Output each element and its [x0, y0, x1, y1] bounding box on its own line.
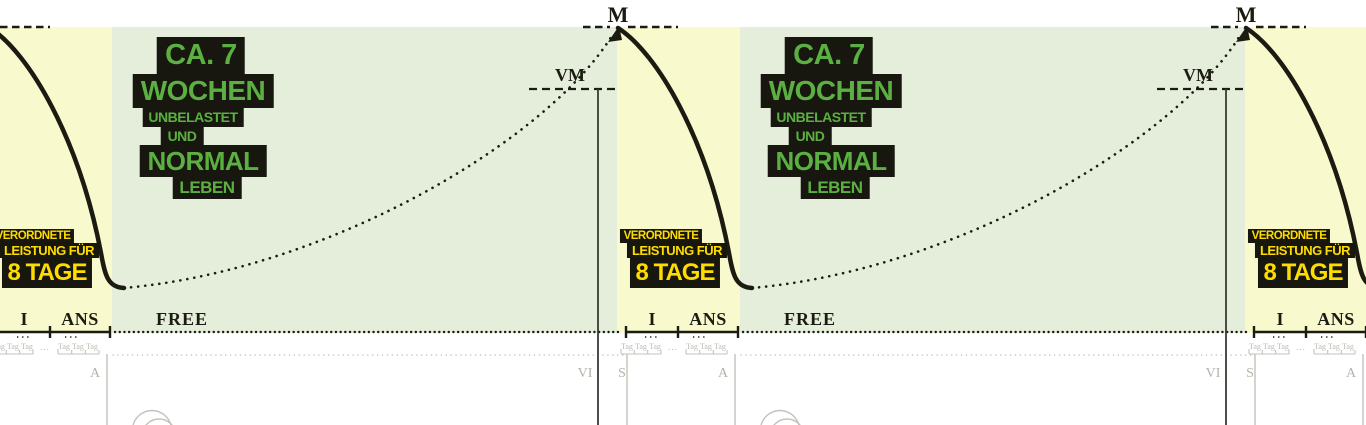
note-line: WOCHEN — [761, 74, 902, 108]
faded-letter-a: A — [718, 366, 728, 382]
training-cycle-3: M VM I ANS FREE CA. 7 WOCHEN UNBELASTET … — [1245, 0, 1366, 425]
day-ellipsis: ... — [1296, 342, 1306, 352]
note-line: VERORDNETE — [0, 229, 74, 243]
day-tick-label: Tag — [1263, 342, 1275, 351]
intensity-phase-label: I — [1276, 309, 1283, 330]
day-ellipsis: ... — [40, 342, 50, 352]
faded-circle-inner — [142, 419, 176, 425]
curves-overlay — [0, 0, 617, 425]
day-tick-label: Tag — [635, 342, 647, 351]
note-line: WOCHEN — [133, 74, 274, 108]
prescription-note-block: VERORDNETE LEISTUNG FÜR 8 TAGE — [1253, 229, 1353, 288]
day-tick-label: Tag — [1314, 342, 1326, 351]
note-line: LEBEN — [800, 177, 869, 199]
faded-vertical-guides — [627, 354, 735, 425]
day-ellipsis: ... — [668, 342, 678, 352]
day-tick-label: Tag — [1342, 342, 1354, 351]
day-tick-label: Tag — [21, 342, 33, 351]
note-line: LEISTUNG FÜR — [627, 243, 727, 258]
curves-overlay — [1245, 0, 1366, 425]
training-cycle-2: M VM I ANS FREE CA. 7 WOCHEN UNBELASTET … — [617, 0, 1245, 425]
ans-phase-label: ANS — [689, 309, 727, 330]
pre-maximum-label: VM — [1183, 65, 1213, 86]
faded-circle — [761, 411, 800, 425]
day-tick-label: Tag — [649, 342, 661, 351]
day-tick-label: Tag — [72, 342, 84, 351]
day-tick-label: Tag — [58, 342, 70, 351]
faded-letter-s: S — [618, 366, 626, 382]
pre-maximum-label: VM — [555, 65, 585, 86]
recovery-note-block: CA. 7 WOCHEN UNBELASTET UND NORMAL LEBEN — [131, 37, 272, 199]
intensity-phase-label: I — [648, 309, 655, 330]
note-line: LEISTUNG FÜR — [1255, 243, 1355, 258]
day-tick-label: Tag — [1277, 342, 1289, 351]
periodization-diagram: M VM I ANS FREE CA. 7 WOCHEN UNBELASTET … — [0, 0, 1366, 425]
day-tick-label: Tag — [686, 342, 698, 351]
day-tick-label: Tag — [86, 342, 98, 351]
faded-vertical-guides — [1255, 354, 1363, 425]
maximum-label: M — [608, 2, 629, 28]
note-line: LEBEN — [172, 177, 241, 199]
day-tick-label: Tag — [1249, 342, 1261, 351]
note-line: 8 TAGE — [1258, 258, 1349, 288]
note-line: UNBELASTET — [142, 108, 243, 127]
note-line: UNBELASTET — [770, 108, 871, 127]
note-line: LEISTUNG FÜR — [0, 243, 99, 258]
curves-overlay — [617, 0, 1245, 425]
day-tick-label: Tag — [714, 342, 726, 351]
training-cycle-1: M VM I ANS FREE CA. 7 WOCHEN UNBELASTET … — [0, 0, 617, 425]
note-line: 8 TAGE — [2, 258, 93, 288]
faded-letter-vi: VI — [578, 366, 593, 382]
intensity-phase-label: I — [20, 309, 27, 330]
day-tick-label: Tag — [700, 342, 712, 351]
note-line: CA. 7 — [157, 37, 245, 74]
faded-circle — [133, 411, 172, 425]
faded-letter-s: S — [1246, 366, 1254, 382]
faded-vertical-guides — [0, 354, 107, 425]
note-line: VERORDNETE — [1248, 229, 1331, 243]
note-line: NORMAL — [139, 145, 266, 177]
ans-phase-label: ANS — [61, 309, 99, 330]
prescription-note-block: VERORDNETE LEISTUNG FÜR 8 TAGE — [625, 229, 725, 288]
day-tick-label: Tag — [1328, 342, 1340, 351]
faded-letter-a: A — [1346, 366, 1356, 382]
recovery-note-block: CA. 7 WOCHEN UNBELASTET UND NORMAL LEBEN — [759, 37, 900, 199]
faded-circle-inner — [770, 419, 804, 425]
note-line: VERORDNETE — [620, 229, 703, 243]
note-line: UND — [161, 127, 204, 145]
note-line: NORMAL — [767, 145, 894, 177]
prescription-note-block: VERORDNETE LEISTUNG FÜR 8 TAGE — [0, 229, 97, 288]
note-line: 8 TAGE — [630, 258, 721, 288]
note-line: UND — [789, 127, 832, 145]
free-phase-label: FREE — [784, 309, 836, 330]
note-line: CA. 7 — [785, 37, 873, 74]
day-tick-label: Tag — [0, 342, 5, 351]
ans-phase-label: ANS — [1317, 309, 1355, 330]
day-tick-label: Tag — [621, 342, 633, 351]
day-tick-label: Tag — [7, 342, 19, 351]
faded-letter-a: A — [90, 366, 100, 382]
maximum-label: M — [1236, 2, 1257, 28]
faded-letter-vi: VI — [1206, 366, 1221, 382]
free-phase-label: FREE — [156, 309, 208, 330]
